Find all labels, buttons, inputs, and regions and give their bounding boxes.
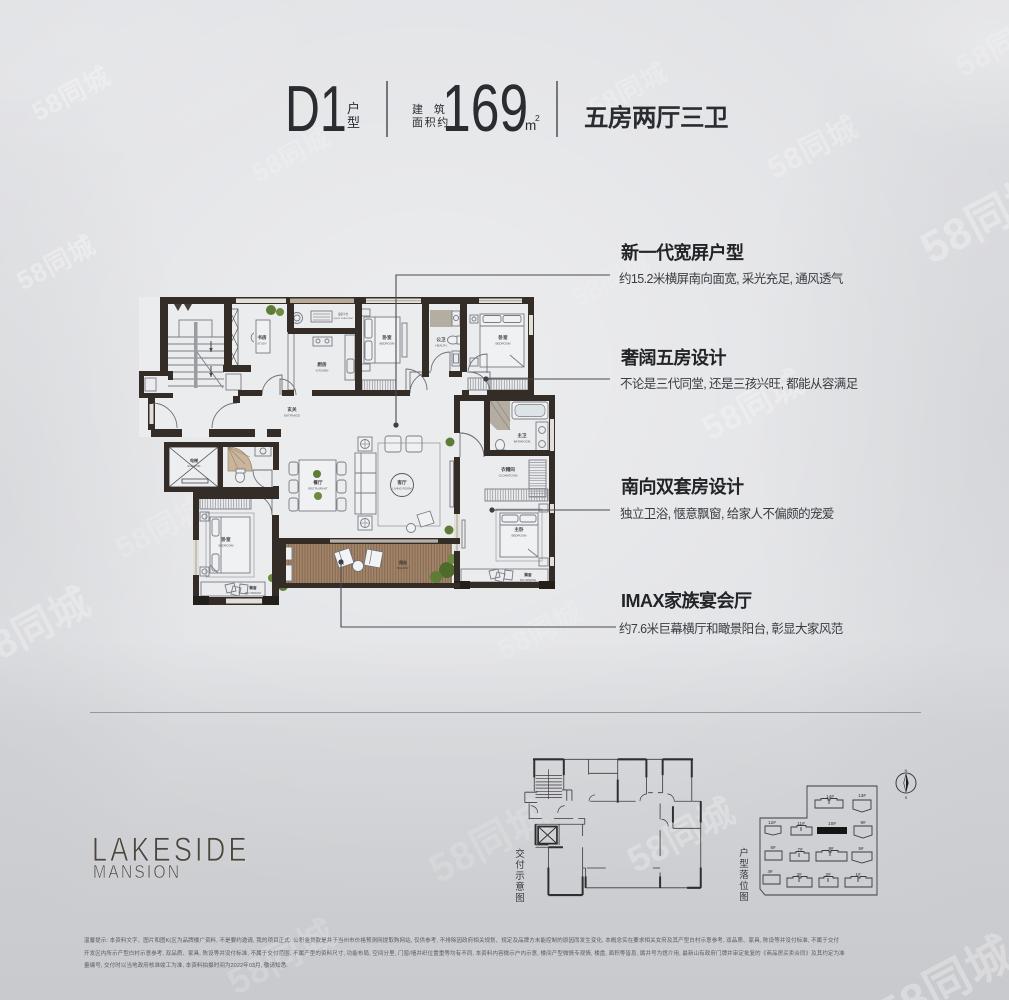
svg-text:主卧: 主卧 [514, 526, 524, 533]
svg-text:玄关: 玄关 [287, 406, 297, 413]
svg-text:ELEVATOR: ELEVATOR [188, 465, 201, 468]
svg-text:BEDROOM: BEDROOM [219, 544, 235, 548]
svg-text:CLOAKROOM: CLOAKROOM [499, 474, 518, 478]
svg-text:公卫: 公卫 [436, 336, 446, 343]
svg-text:客厅: 客厅 [396, 479, 407, 486]
svg-text:卧室: 卧室 [382, 334, 392, 341]
svg-text:飘窗: 飘窗 [249, 585, 257, 590]
svg-text:HEALTH: HEALTH [435, 344, 446, 348]
svg-text:BEDROOM: BEDROOM [380, 342, 396, 346]
svg-text:设备平台: 设备平台 [338, 312, 349, 316]
svg-text:交付示意图: 交付示意图 [515, 848, 525, 904]
svg-text:4#: 4# [767, 869, 773, 874]
svg-text:STUDY: STUDY [257, 342, 267, 346]
svg-text:10#: 10# [828, 821, 836, 826]
svg-text:N: N [905, 768, 908, 773]
svg-text:BAY WINDOW: BAY WINDOW [245, 592, 261, 595]
svg-text:卧室: 卧室 [498, 334, 508, 341]
svg-text:飘窗: 飘窗 [524, 572, 532, 577]
svg-text:厨房: 厨房 [317, 361, 327, 368]
svg-text:衣帽间: 衣帽间 [501, 466, 515, 473]
svg-text:BATHROOM: BATHROOM [514, 440, 531, 444]
svg-text:BEDROOM: BEDROOM [496, 342, 512, 346]
svg-text:12#: 12# [768, 820, 776, 825]
svg-text:LIVING ROOM: LIVING ROOM [392, 487, 412, 491]
svg-text:6#: 6# [770, 845, 776, 850]
svg-text:ENTRANCE: ENTRANCE [284, 414, 300, 418]
svg-text:书房: 书房 [257, 334, 267, 341]
svg-text:阳台: 阳台 [399, 560, 407, 565]
svg-text:BALCONY: BALCONY [397, 567, 409, 570]
svg-text:13#: 13# [858, 793, 866, 798]
svg-text:户型落位图: 户型落位图 [739, 847, 749, 903]
svg-text:RESTAURANT: RESTAURANT [308, 487, 328, 491]
svg-text:餐厅: 餐厅 [312, 479, 323, 486]
svg-text:S: S [905, 795, 908, 800]
svg-text:主卫: 主卫 [517, 432, 527, 439]
svg-text:5#: 5# [858, 846, 864, 851]
svg-text:卧室: 卧室 [221, 536, 231, 543]
svg-text:BEDROOM: BEDROOM [512, 534, 528, 538]
svg-text:9#: 9# [860, 820, 866, 825]
svg-text:BAY WINDOW: BAY WINDOW [520, 579, 536, 582]
svg-text:电梯: 电梯 [190, 457, 198, 463]
svg-text:EQUIP PLATFORM: EQUIP PLATFORM [333, 317, 352, 320]
svg-text:KITCHEN: KITCHEN [316, 369, 329, 373]
